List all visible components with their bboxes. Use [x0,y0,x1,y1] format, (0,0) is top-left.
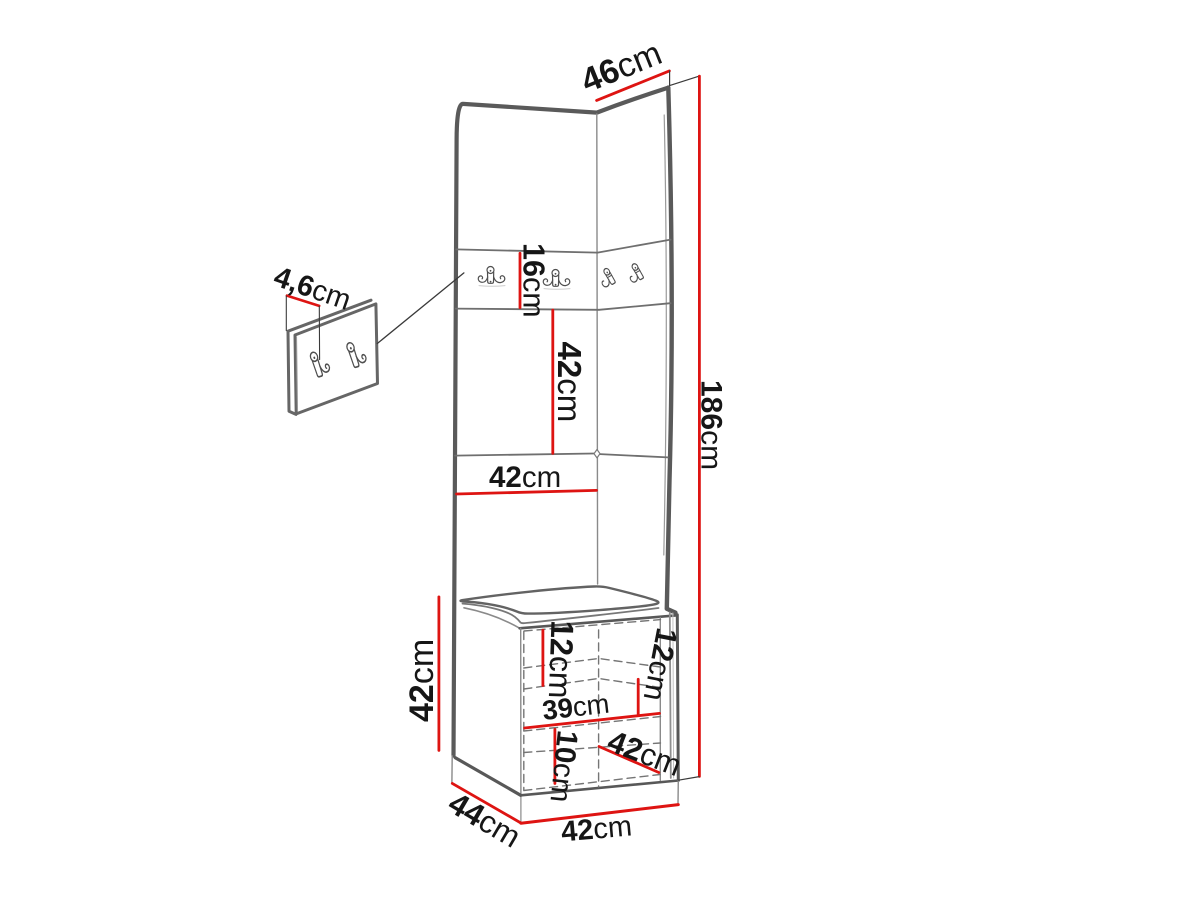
svg-text:42cm: 42cm [560,810,633,848]
svg-text:16cm: 16cm [517,243,551,318]
svg-text:12cm: 12cm [542,620,581,699]
svg-text:42cm: 42cm [551,342,588,423]
svg-text:42cm: 42cm [489,461,561,494]
svg-text:42cm: 42cm [403,639,441,722]
svg-text:186cm: 186cm [695,380,728,470]
